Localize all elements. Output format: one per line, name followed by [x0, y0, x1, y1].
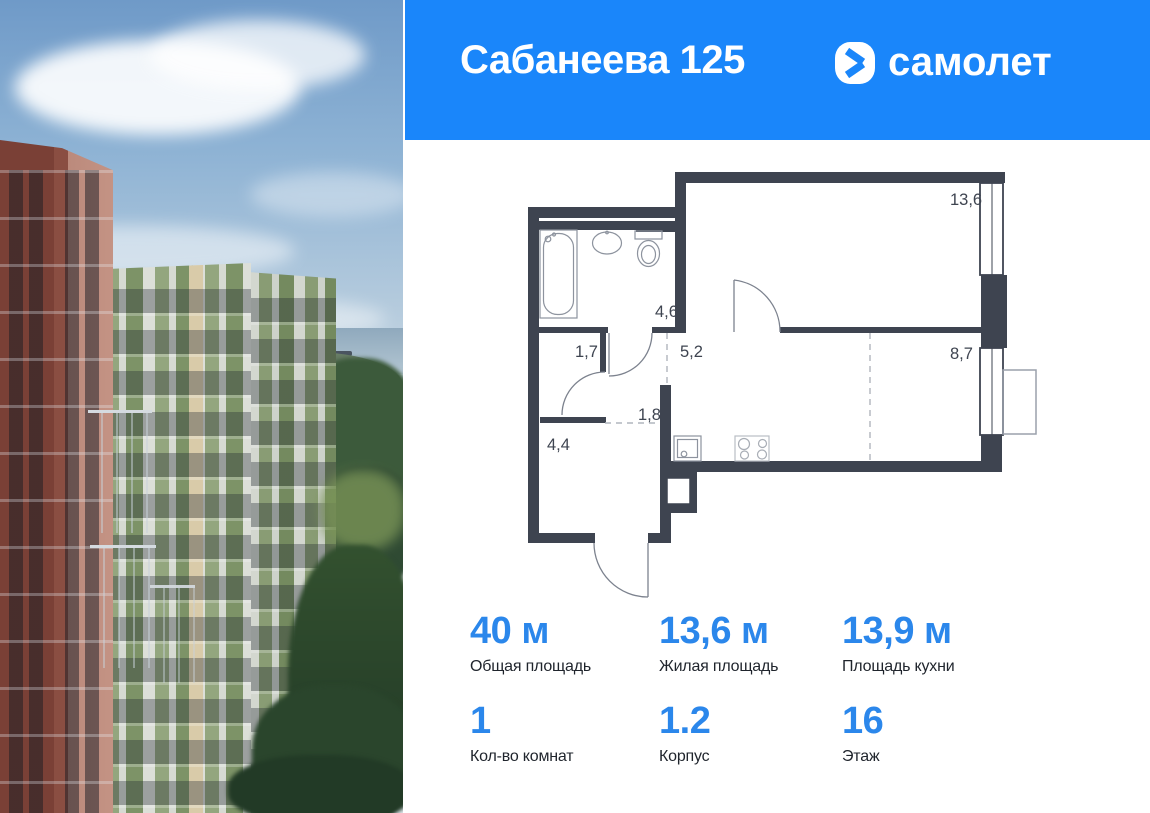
- brand-logo: самолет: [835, 40, 1052, 85]
- stove-icon: [735, 436, 769, 461]
- room-label: 4,4: [547, 436, 570, 454]
- stat-value: 16: [842, 702, 1027, 740]
- balcony-box: [88, 410, 152, 533]
- trees-highlight: [320, 470, 403, 550]
- room-label: 5,2: [680, 343, 703, 361]
- duct-niche: [667, 478, 690, 504]
- green-tower-front: [93, 263, 251, 813]
- bathtub-icon: [540, 230, 577, 318]
- room-label: 13,6: [950, 191, 982, 209]
- balcony-box: [150, 585, 195, 683]
- floor-plan: 13,6 4,6 1,7 5,2 1,8 4,4 8,7: [515, 160, 1045, 610]
- brand-name: самолет: [888, 40, 1052, 85]
- stat-rooms: 1 Кол-во комнат: [470, 702, 655, 766]
- stat-label: Кол-во комнат: [470, 748, 655, 766]
- kitchen-sink-icon: [674, 436, 701, 461]
- stat-living-area: 13,6 м Жилая площадь: [659, 612, 844, 676]
- stat-value: 13,6 м: [659, 612, 844, 650]
- trees: [228, 755, 403, 813]
- stat-label: Жилая площадь: [659, 658, 844, 676]
- stat-total-area: 40 м Общая площадь: [470, 612, 655, 676]
- toilet-icon: [635, 231, 662, 267]
- room-label: 1,8: [638, 406, 661, 424]
- room-label: 1,7: [575, 343, 598, 361]
- stat-value: 13,9 м: [842, 612, 1027, 650]
- stat-value: 1.2: [659, 702, 844, 740]
- sink-icon: [593, 231, 622, 254]
- cloud: [250, 172, 403, 217]
- stat-value: 1: [470, 702, 655, 740]
- cloud: [150, 20, 365, 90]
- stat-building: 1.2 Корпус: [659, 702, 844, 766]
- building-photo: [0, 0, 403, 813]
- header-banner: Сабанеева 125 самолет: [405, 0, 1150, 140]
- balcony-box: [90, 545, 156, 668]
- stat-value: 40 м: [470, 612, 655, 650]
- samolet-chevron-icon: [835, 42, 875, 84]
- room-label: 8,7: [950, 345, 973, 363]
- room-area-labels: 13,6 4,6 1,7 5,2 1,8 4,4 8,7: [547, 191, 982, 454]
- dashed-boundary: [605, 333, 870, 461]
- listing-card: Сабанеева 125 самолет: [0, 0, 1150, 813]
- stat-label: Общая площадь: [470, 658, 655, 676]
- stat-label: Этаж: [842, 748, 1027, 766]
- room-label: 4,6: [655, 303, 678, 321]
- stat-kitchen-area: 13,9 м Площадь кухни: [842, 612, 1027, 676]
- balcony-outline: [1003, 370, 1036, 434]
- walls: [528, 172, 1007, 543]
- stat-label: Площадь кухни: [842, 658, 1027, 676]
- stat-floor: 16 Этаж: [842, 702, 1027, 766]
- stat-label: Корпус: [659, 748, 844, 766]
- page-title: Сабанеева 125: [460, 38, 745, 83]
